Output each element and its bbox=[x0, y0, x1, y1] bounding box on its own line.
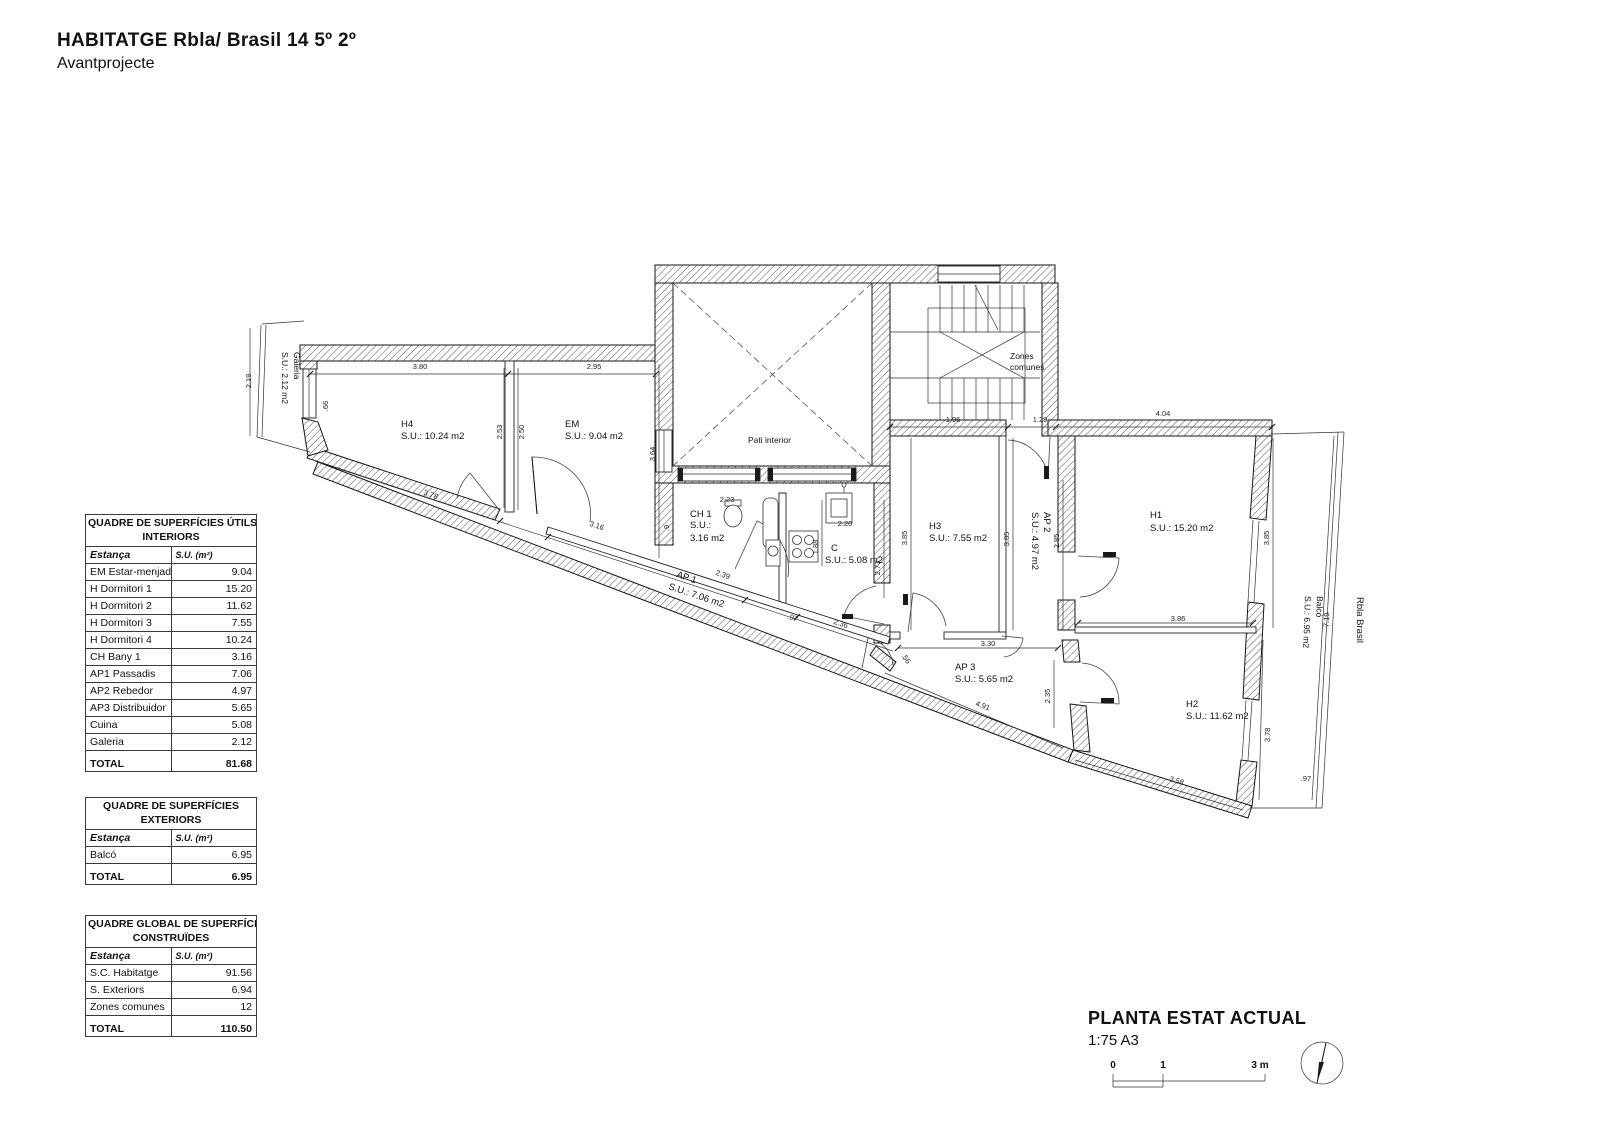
table2-title-line2: EXTERIORS bbox=[88, 814, 254, 828]
room-area-galeria: S.U.: 2.12 m2 bbox=[280, 352, 290, 404]
room-area-h1: S.U.: 15.20 m2 bbox=[1150, 523, 1213, 534]
table-total-row: TOTAL81.68 bbox=[86, 751, 257, 772]
scale-bar-3m: 3 m bbox=[1251, 1060, 1268, 1071]
sheet: HABITATGE Rbla/ Brasil 14 5º 2º Avantpro… bbox=[0, 0, 1600, 1131]
table-row: EM Estar-menjador9.04 bbox=[86, 564, 257, 581]
dim-label: 2.36 bbox=[832, 617, 849, 630]
table-row: S.C. Habitatge91.56 bbox=[86, 965, 257, 982]
dim-label: 4.91 bbox=[974, 699, 991, 712]
table1-title-line2: INTERIORS bbox=[88, 531, 254, 545]
room-label-ap2: AP 2 bbox=[1041, 512, 1052, 532]
room-area-h4: S.U.: 10.24 m2 bbox=[401, 431, 464, 442]
table-row: Cuina5.08 bbox=[86, 717, 257, 734]
table-total-row: TOTAL110.50 bbox=[86, 1016, 257, 1037]
dim-label: 3.78 bbox=[1263, 727, 1273, 742]
table-row: Balcó6.95 bbox=[86, 847, 257, 864]
room-label-h4: H4 bbox=[401, 419, 413, 430]
room-label-galeria: Galeria bbox=[292, 352, 302, 380]
table2-col-area: S.U. (m²) bbox=[171, 830, 257, 847]
dim-label: 3.80 bbox=[413, 362, 428, 371]
drawing-scale: 1:75 A3 bbox=[1088, 1032, 1139, 1049]
scale-bar-1: 1 bbox=[1160, 1060, 1166, 1071]
table-row: AP1 Passadis7.06 bbox=[86, 666, 257, 683]
table3-title-line2: CONSTRUÏDES bbox=[88, 932, 254, 946]
dimension-lines bbox=[250, 328, 1334, 810]
drawing-title: PLANTA ESTAT ACTUAL bbox=[1088, 1008, 1306, 1029]
dim-label: 3.16 bbox=[588, 519, 605, 532]
dim-label: 3.64 bbox=[648, 447, 657, 462]
dim-label: 4.04 bbox=[1156, 409, 1171, 418]
room-label-zones-1: Zones bbox=[1010, 351, 1034, 361]
north-arrow-icon bbox=[1301, 1042, 1343, 1084]
table-row: CH Bany 13.16 bbox=[86, 649, 257, 666]
room-label-balco: Balcó bbox=[1314, 596, 1325, 618]
room-label-ap3: AP 3 bbox=[955, 662, 975, 673]
dim-label: 2.95 bbox=[587, 362, 602, 371]
dim-label: 1.96 bbox=[946, 415, 961, 424]
dim-label: .66 bbox=[321, 401, 330, 411]
room-area-ch1-2: 3.16 m2 bbox=[690, 533, 724, 544]
dim-label: 2.19 bbox=[244, 374, 253, 389]
dim-label: 2.53 bbox=[495, 425, 504, 440]
room-area-em: S.U.: 9.04 m2 bbox=[565, 431, 623, 442]
table-superficies-utils: QUADRE DE SUPERFÍCIES ÚTILS INTERIORS Es… bbox=[85, 514, 257, 772]
table1-col-area: S.U. (m²) bbox=[171, 547, 257, 564]
table-superficies-construides: QUADRE GLOBAL DE SUPERFÍCIES CONSTRUÏDES… bbox=[85, 915, 257, 1037]
room-label-h1: H1 bbox=[1150, 510, 1162, 521]
room-area-h3: S.U.: 7.55 m2 bbox=[929, 533, 987, 544]
table-row: S. Exteriors6.94 bbox=[86, 982, 257, 999]
table-superficies-exteriors: QUADRE DE SUPERFÍCIES EXTERIORS Estança … bbox=[85, 797, 257, 885]
dim-label: .9 bbox=[662, 525, 671, 531]
table-row: AP2 Rebedor4.97 bbox=[86, 683, 257, 700]
room-label-em: EM bbox=[565, 419, 579, 430]
scale-bar-0: 0 bbox=[1110, 1060, 1116, 1071]
room-area-ap3: S.U.: 5.65 m2 bbox=[955, 674, 1013, 685]
table-row: H Dormitori 115.20 bbox=[86, 581, 257, 598]
dim-label: 2.50 bbox=[517, 425, 526, 440]
room-area-c: S.U.: 5.08 m2 bbox=[825, 555, 883, 566]
dim-label: 3.85 bbox=[1002, 532, 1011, 547]
dim-label: 2.23 bbox=[720, 495, 735, 504]
dim-label: .97 bbox=[1301, 774, 1311, 783]
dim-label: 2.35 bbox=[1043, 689, 1052, 704]
table-row: H Dormitori 37.55 bbox=[86, 615, 257, 632]
dim-label: 2.39 bbox=[714, 568, 731, 581]
street-label: Rbla Brasil bbox=[1354, 597, 1365, 643]
dim-label: 3.30 bbox=[981, 639, 996, 648]
table-row: H Dormitori 211.62 bbox=[86, 598, 257, 615]
dim-label: .97 bbox=[786, 612, 799, 624]
dim-label: 2.20 bbox=[838, 519, 853, 528]
table2-col-room: Estança bbox=[86, 830, 172, 847]
dim-label: 2.85 bbox=[1052, 534, 1061, 549]
dim-label: 1.88 bbox=[811, 540, 820, 555]
table-total-row: TOTAL6.95 bbox=[86, 864, 257, 885]
dim-label: 3.85 bbox=[900, 531, 909, 546]
table3-col-area: S.U. (m²) bbox=[171, 948, 257, 965]
table2-title-line1: QUADRE DE SUPERFÍCIES bbox=[88, 800, 254, 814]
dim-label: 1.29 bbox=[1033, 415, 1048, 424]
room-area-ap2: S.U.: 4.97 m2 bbox=[1029, 512, 1040, 570]
table-row: Galeria2.12 bbox=[86, 734, 257, 751]
table1-title-line1: QUADRE DE SUPERFÍCIES ÚTILS bbox=[88, 517, 254, 531]
room-label-pati: Pati interior bbox=[748, 435, 791, 445]
table-row: H Dormitori 410.24 bbox=[86, 632, 257, 649]
room-area-h2: S.U.: 11.62 m2 bbox=[1186, 711, 1249, 722]
dim-label: 3.85 bbox=[1262, 531, 1271, 546]
room-label-h2: H2 bbox=[1186, 699, 1198, 710]
scale-bar: 0 1 3 m bbox=[1110, 1060, 1269, 1087]
room-label-c: C bbox=[831, 543, 838, 554]
table3-col-room: Estança bbox=[86, 948, 172, 965]
room-area-balco: S.U.: 6.95 m2 bbox=[1301, 596, 1313, 649]
dim-label: 3.86 bbox=[1171, 614, 1186, 623]
room-label-ch1: CH 1 bbox=[690, 509, 712, 520]
room-label-h3: H3 bbox=[929, 521, 941, 532]
dim-label: .56 bbox=[899, 652, 912, 666]
table1-col-room: Estança bbox=[86, 547, 172, 564]
table3-title-line1: QUADRE GLOBAL DE SUPERFÍCIES bbox=[88, 918, 254, 932]
table-row: AP3 Distribuidor5.65 bbox=[86, 700, 257, 717]
table-row: Zones comunes12 bbox=[86, 999, 257, 1016]
room-area-ch1-1: S.U.: bbox=[690, 520, 711, 531]
room-label-zones-2: comunes bbox=[1010, 362, 1045, 372]
